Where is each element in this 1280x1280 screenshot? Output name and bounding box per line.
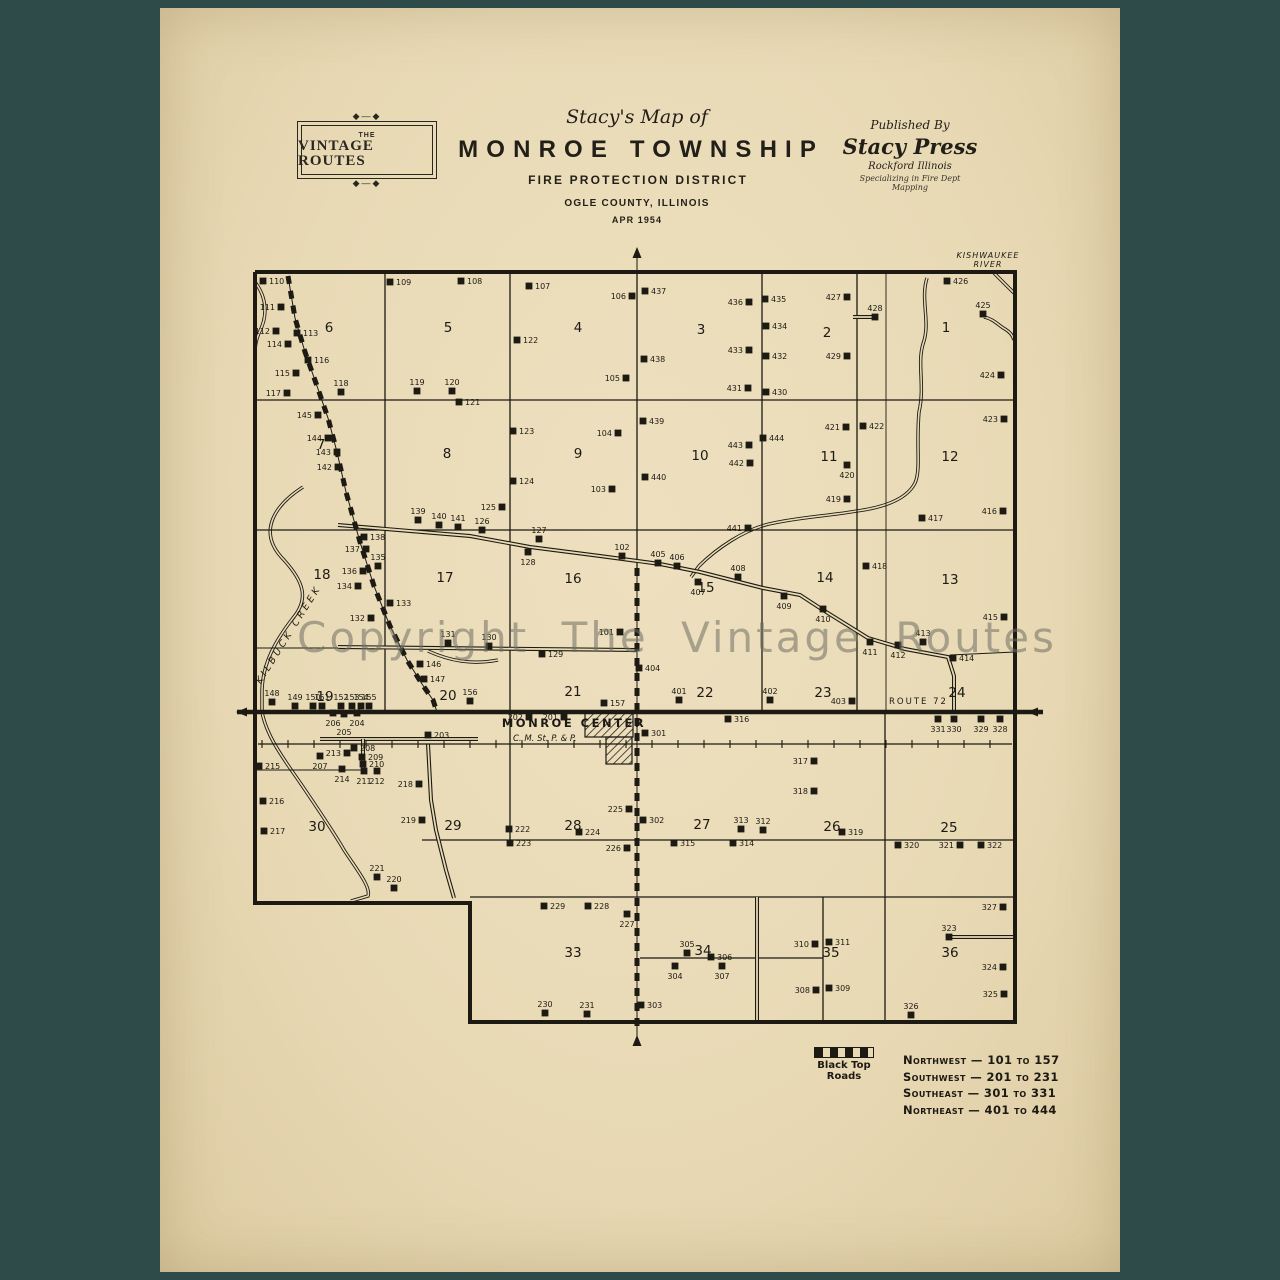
section-number: 19 bbox=[316, 689, 333, 705]
map-marker bbox=[330, 710, 337, 717]
map-marker bbox=[746, 442, 753, 449]
map-marker bbox=[479, 527, 486, 534]
map-marker-number: 222 bbox=[515, 825, 530, 834]
blacktop-road-label-line1: Black Top bbox=[796, 1060, 892, 1071]
map-marker-number: 116 bbox=[314, 356, 329, 365]
map-marker-number: 303 bbox=[647, 1001, 662, 1010]
map-marker bbox=[609, 486, 616, 493]
monroe-center-block bbox=[606, 737, 632, 764]
map-marker-number: 412 bbox=[890, 651, 905, 660]
map-marker bbox=[341, 711, 348, 718]
map-marker bbox=[615, 430, 622, 437]
section-number: 17 bbox=[436, 570, 453, 586]
map-marker bbox=[719, 963, 726, 970]
map-marker bbox=[536, 536, 543, 543]
map-marker bbox=[361, 534, 368, 541]
direction-arrow-icon bbox=[236, 708, 247, 717]
map-marker bbox=[421, 676, 428, 683]
map-marker bbox=[1000, 904, 1007, 911]
map-marker-number: 122 bbox=[523, 336, 538, 345]
map-marker bbox=[944, 278, 951, 285]
direction-arrow-icon bbox=[1027, 708, 1038, 717]
map-marker bbox=[641, 356, 648, 363]
map-marker-number: 134 bbox=[337, 582, 352, 591]
map-marker-number: 331 bbox=[930, 725, 945, 734]
map-marker bbox=[812, 941, 819, 948]
section-number: 28 bbox=[564, 818, 581, 834]
map-marker-number: 229 bbox=[550, 902, 565, 911]
map-marker bbox=[261, 828, 268, 835]
map-marker-number: 312 bbox=[755, 817, 770, 826]
map-marker bbox=[826, 985, 833, 992]
map-marker bbox=[458, 278, 465, 285]
map-marker bbox=[935, 716, 942, 723]
section-number: 27 bbox=[693, 817, 710, 833]
map-marker-number: 428 bbox=[867, 304, 882, 313]
map-marker-number: 439 bbox=[649, 417, 664, 426]
map-marker bbox=[414, 388, 421, 395]
map-marker bbox=[957, 842, 964, 849]
blacktop-road-label-line2: Roads bbox=[796, 1071, 892, 1082]
map-marker-number: 156 bbox=[462, 688, 477, 697]
map-marker-number: 328 bbox=[992, 725, 1007, 734]
map-marker-number: 119 bbox=[409, 378, 424, 387]
map-marker-number: 433 bbox=[728, 346, 743, 355]
section-number: 18 bbox=[313, 567, 330, 583]
map-marker-number: 444 bbox=[769, 434, 784, 443]
map-marker-number: 110 bbox=[269, 277, 284, 286]
section-number: 35 bbox=[822, 945, 839, 961]
map-marker bbox=[920, 639, 927, 646]
map-marker bbox=[895, 642, 902, 649]
map-marker-number: 231 bbox=[579, 1001, 594, 1010]
map-marker-number: 415 bbox=[983, 613, 998, 622]
map-marker-number: 226 bbox=[606, 844, 621, 853]
map-marker bbox=[745, 525, 752, 532]
map-marker bbox=[335, 464, 342, 471]
map-marker bbox=[445, 640, 452, 647]
map-marker-number: 141 bbox=[450, 514, 465, 523]
map-marker-number: 129 bbox=[548, 650, 563, 659]
map-marker-number: 304 bbox=[667, 972, 682, 981]
map-marker-number: 230 bbox=[537, 1000, 552, 1009]
map-marker bbox=[419, 817, 426, 824]
map-marker bbox=[908, 1012, 915, 1019]
map-marker-number: 326 bbox=[903, 1002, 918, 1011]
section-number: 8 bbox=[443, 446, 452, 462]
map-marker bbox=[366, 703, 373, 710]
section-number: 15 bbox=[697, 580, 714, 596]
map-marker bbox=[338, 703, 345, 710]
map-marker bbox=[980, 311, 987, 318]
map-marker-number: 420 bbox=[839, 471, 854, 480]
map-marker-number: 432 bbox=[772, 352, 787, 361]
map-marker-number: 227 bbox=[619, 920, 634, 929]
place-label: KISHWAUKEE bbox=[957, 251, 1020, 260]
map-marker-number: 148 bbox=[264, 689, 279, 698]
map-marker-number: 418 bbox=[872, 562, 887, 571]
map-marker-number: 204 bbox=[349, 719, 364, 728]
creek-line bbox=[262, 487, 303, 712]
map-marker-number: 146 bbox=[426, 660, 441, 669]
map-marker-number: 419 bbox=[826, 495, 841, 504]
map-marker bbox=[425, 732, 432, 739]
map-marker bbox=[294, 330, 301, 337]
map-marker-number: 411 bbox=[862, 648, 877, 657]
section-number: 3 bbox=[697, 322, 706, 338]
map-marker bbox=[293, 370, 300, 377]
map-marker-number: 310 bbox=[794, 940, 809, 949]
map-marker bbox=[655, 560, 662, 567]
section-number: 21 bbox=[564, 684, 581, 700]
map-marker bbox=[539, 651, 546, 658]
map-marker bbox=[978, 842, 985, 849]
map-marker bbox=[601, 700, 608, 707]
map-marker-number: 325 bbox=[983, 990, 998, 999]
map-marker bbox=[338, 389, 345, 396]
map-marker-number: 319 bbox=[848, 828, 863, 837]
map-marker-number: 113 bbox=[303, 329, 318, 338]
section-number: 23 bbox=[814, 685, 831, 701]
map-marker-number: 142 bbox=[317, 463, 332, 472]
map-marker-number: 329 bbox=[973, 725, 988, 734]
map-marker-number: 434 bbox=[772, 322, 787, 331]
section-number: 11 bbox=[820, 449, 837, 465]
map-marker bbox=[1001, 416, 1008, 423]
map-marker-number: 101 bbox=[599, 628, 614, 637]
map-marker bbox=[674, 563, 681, 570]
map-marker bbox=[735, 574, 742, 581]
map-marker-number: 140 bbox=[431, 512, 446, 521]
map-marker-number: 442 bbox=[729, 459, 744, 468]
map-marker-number: 309 bbox=[835, 984, 850, 993]
map-marker-number: 124 bbox=[519, 477, 534, 486]
map-marker bbox=[278, 304, 285, 311]
map-marker bbox=[506, 826, 513, 833]
map-marker-number: 302 bbox=[649, 816, 664, 825]
map-marker bbox=[946, 934, 953, 941]
map-marker-number: 157 bbox=[610, 699, 625, 708]
map-marker-number: 132 bbox=[350, 614, 365, 623]
map-marker-number: 430 bbox=[772, 388, 787, 397]
section-number: 6 bbox=[325, 320, 334, 336]
map-marker bbox=[273, 328, 280, 335]
map-marker-number: 207 bbox=[312, 762, 327, 771]
map-marker-number: 313 bbox=[733, 816, 748, 825]
map-marker bbox=[629, 293, 636, 300]
map-marker bbox=[542, 1010, 549, 1017]
map-marker-number: 424 bbox=[980, 371, 995, 380]
blacktop-road-swatch bbox=[814, 1047, 874, 1058]
section-number: 7 bbox=[317, 437, 326, 453]
map-marker bbox=[1000, 508, 1007, 515]
map-marker bbox=[626, 806, 633, 813]
map-marker bbox=[467, 698, 474, 705]
map-marker bbox=[349, 703, 356, 710]
map-marker bbox=[642, 474, 649, 481]
map-marker bbox=[676, 697, 683, 704]
map-marker-number: 405 bbox=[650, 550, 665, 559]
map-marker-number: 318 bbox=[793, 787, 808, 796]
map-marker-number: 117 bbox=[266, 389, 281, 398]
map-marker-number: 120 bbox=[444, 378, 459, 387]
map-marker-number: 205 bbox=[336, 728, 351, 737]
map-marker-number: 115 bbox=[275, 369, 290, 378]
creek-line bbox=[994, 273, 1014, 293]
section-number: 33 bbox=[564, 945, 581, 961]
map-marker-number: 225 bbox=[608, 805, 623, 814]
map-marker bbox=[746, 347, 753, 354]
section-number: 30 bbox=[308, 819, 325, 835]
map-marker-number: 112 bbox=[255, 327, 270, 336]
map-marker bbox=[260, 278, 267, 285]
map-marker bbox=[416, 781, 423, 788]
section-number: 1 bbox=[942, 320, 951, 336]
map-marker-number: 133 bbox=[396, 599, 411, 608]
section-number: 10 bbox=[691, 448, 708, 464]
map-marker-number: 219 bbox=[401, 816, 416, 825]
map-marker-number: 217 bbox=[270, 827, 285, 836]
map-marker bbox=[525, 549, 532, 556]
section-number: 20 bbox=[439, 688, 456, 704]
map-marker bbox=[305, 357, 312, 364]
map-marker bbox=[360, 761, 367, 768]
map-marker-number: 102 bbox=[614, 543, 629, 552]
map-marker-number: 155 bbox=[361, 693, 376, 702]
map-marker bbox=[684, 950, 691, 957]
section-number: 22 bbox=[696, 685, 713, 701]
section-number: 24 bbox=[948, 685, 965, 701]
map-marker-number: 206 bbox=[325, 719, 340, 728]
map-marker bbox=[417, 661, 424, 668]
place-label: ROUTE 72 bbox=[889, 697, 948, 707]
map-marker-number: 406 bbox=[669, 553, 684, 562]
map-marker-number: 212 bbox=[369, 777, 384, 786]
map-marker bbox=[844, 353, 851, 360]
map-marker bbox=[339, 766, 346, 773]
map-marker bbox=[863, 563, 870, 570]
map-marker bbox=[436, 522, 443, 529]
map-marker bbox=[951, 716, 958, 723]
place-label: KILBUCK CREEK bbox=[254, 583, 324, 686]
map-marker-number: 423 bbox=[983, 415, 998, 424]
map-marker bbox=[811, 788, 818, 795]
map-marker bbox=[760, 435, 767, 442]
map-marker bbox=[456, 399, 463, 406]
map-marker-number: 223 bbox=[516, 839, 531, 848]
map-marker bbox=[998, 372, 1005, 379]
map-marker-number: 408 bbox=[730, 564, 745, 573]
map-marker-number: 136 bbox=[342, 567, 357, 576]
map-marker-number: 123 bbox=[519, 427, 534, 436]
map-marker-number: 301 bbox=[651, 729, 666, 738]
map-marker-number: 317 bbox=[793, 757, 808, 766]
map-marker bbox=[860, 423, 867, 430]
map-marker bbox=[738, 826, 745, 833]
map-marker bbox=[811, 758, 818, 765]
map-marker-number: 429 bbox=[826, 352, 841, 361]
map-marker-number: 314 bbox=[739, 839, 754, 848]
map-marker bbox=[391, 885, 398, 892]
map-marker bbox=[374, 874, 381, 881]
map-marker-number: 426 bbox=[953, 277, 968, 286]
map-marker bbox=[510, 478, 517, 485]
section-number: 16 bbox=[564, 571, 581, 587]
map-marker bbox=[1000, 964, 1007, 971]
map-marker bbox=[344, 750, 351, 757]
map-marker bbox=[763, 353, 770, 360]
map-marker bbox=[358, 703, 365, 710]
map-marker bbox=[269, 699, 276, 706]
map-marker-number: 125 bbox=[481, 503, 496, 512]
map-marker-number: 425 bbox=[975, 301, 990, 310]
map-marker-number: 410 bbox=[815, 615, 830, 624]
section-number: 2 bbox=[823, 325, 832, 341]
map-marker-number: 307 bbox=[714, 972, 729, 981]
map-marker bbox=[640, 817, 647, 824]
map-marker bbox=[747, 460, 754, 467]
map-marker bbox=[844, 294, 851, 301]
map-marker bbox=[455, 524, 462, 531]
map-marker bbox=[486, 643, 493, 650]
map-marker-number: 138 bbox=[370, 533, 385, 542]
map-marker-number: 417 bbox=[928, 514, 943, 523]
map-marker-number: 322 bbox=[987, 841, 1002, 850]
creek-line bbox=[984, 317, 1014, 340]
map-marker-number: 127 bbox=[531, 526, 546, 535]
map-marker-number: 130 bbox=[481, 633, 496, 642]
map-marker-number: 327 bbox=[982, 903, 997, 912]
map-marker bbox=[363, 546, 370, 553]
direction-arrow-icon bbox=[633, 1035, 642, 1046]
map-marker-number: 440 bbox=[651, 473, 666, 482]
map-marker-number: 126 bbox=[474, 517, 489, 526]
map-marker-number: 216 bbox=[269, 797, 284, 806]
map-marker bbox=[260, 798, 267, 805]
range-southeast: Southeast — 301 to 331 bbox=[903, 1085, 1059, 1102]
map-marker-number: 220 bbox=[386, 875, 401, 884]
map-marker-number: 224 bbox=[585, 828, 600, 837]
poster-background: ◆—◆ THE VINTAGE ROUTES ◆—◆ Stacy's Map o… bbox=[0, 0, 1280, 1280]
map-marker-number: 218 bbox=[398, 780, 413, 789]
map-marker-number: 320 bbox=[904, 841, 919, 850]
map-marker-number: 121 bbox=[465, 398, 480, 407]
section-number: 13 bbox=[941, 572, 958, 588]
map-marker-number: 416 bbox=[982, 507, 997, 516]
map-marker-number: 323 bbox=[941, 924, 956, 933]
map-marker bbox=[767, 697, 774, 704]
map-marker bbox=[354, 710, 361, 717]
map-marker-number: 403 bbox=[831, 697, 846, 706]
map-marker-number: 305 bbox=[679, 940, 694, 949]
map-marker bbox=[844, 462, 851, 469]
map-marker-number: 316 bbox=[734, 715, 749, 724]
section-number: 4 bbox=[574, 320, 583, 336]
map-marker-number: 137 bbox=[345, 545, 360, 554]
map-marker bbox=[368, 615, 375, 622]
map-marker-number: 221 bbox=[369, 864, 384, 873]
map-marker bbox=[1001, 991, 1008, 998]
map-marker bbox=[872, 314, 879, 321]
map-marker bbox=[619, 553, 626, 560]
map-marker-number: 147 bbox=[430, 675, 445, 684]
map-marker bbox=[849, 698, 856, 705]
direction-arrow-icon bbox=[633, 247, 642, 258]
map-marker bbox=[762, 296, 769, 303]
map-marker bbox=[449, 388, 456, 395]
map-marker bbox=[623, 375, 630, 382]
section-number: 25 bbox=[940, 820, 957, 836]
map-marker bbox=[374, 768, 381, 775]
map-marker-number: 437 bbox=[651, 287, 666, 296]
map-marker-number: 149 bbox=[287, 693, 302, 702]
map-marker-number: 436 bbox=[728, 298, 743, 307]
map-marker bbox=[507, 840, 514, 847]
map-marker bbox=[624, 845, 631, 852]
map-marker-number: 401 bbox=[671, 687, 686, 696]
map-marker bbox=[285, 341, 292, 348]
range-northeast: Northeast — 401 to 444 bbox=[903, 1102, 1059, 1119]
map-marker-number: 214 bbox=[334, 775, 349, 784]
map-marker bbox=[317, 753, 324, 760]
map-marker bbox=[636, 665, 643, 672]
map-marker-number: 118 bbox=[333, 379, 348, 388]
map-marker bbox=[978, 716, 985, 723]
map-marker bbox=[950, 655, 957, 662]
map-marker-number: 431 bbox=[727, 384, 742, 393]
map-marker bbox=[781, 593, 788, 600]
section-number: 9 bbox=[574, 446, 583, 462]
township-map-svg: 1011021031041051061071081091101111121131… bbox=[0, 0, 1280, 1280]
map-marker bbox=[584, 1011, 591, 1018]
section-number: 26 bbox=[823, 819, 840, 835]
map-marker-number: 438 bbox=[650, 355, 665, 364]
place-label: RIVER bbox=[973, 260, 1002, 269]
map-marker-number: 330 bbox=[946, 725, 961, 734]
blacktop-road-label: Black Top Roads bbox=[796, 1060, 892, 1082]
section-number: 29 bbox=[444, 818, 461, 834]
map-marker bbox=[415, 517, 422, 524]
map-marker-number: 139 bbox=[410, 507, 425, 516]
map-marker-number: 308 bbox=[795, 986, 810, 995]
map-marker-number: 203 bbox=[434, 731, 449, 740]
map-marker-number: 441 bbox=[727, 524, 742, 533]
map-marker bbox=[763, 389, 770, 396]
map-marker bbox=[360, 568, 367, 575]
map-marker bbox=[514, 337, 521, 344]
map-marker-number: 413 bbox=[915, 629, 930, 638]
section-number: 12 bbox=[941, 449, 958, 465]
map-marker bbox=[325, 435, 332, 442]
map-marker bbox=[725, 716, 732, 723]
map-marker-number: 422 bbox=[869, 422, 884, 431]
map-marker bbox=[617, 629, 624, 636]
map-marker-number: 128 bbox=[520, 558, 535, 567]
map-marker bbox=[355, 583, 362, 590]
map-marker bbox=[844, 496, 851, 503]
place-label: MONROE CENTER bbox=[502, 716, 646, 730]
map-marker-number: 131 bbox=[440, 630, 455, 639]
map-marker bbox=[334, 449, 341, 456]
map-marker bbox=[745, 385, 752, 392]
map-marker bbox=[895, 842, 902, 849]
map-marker bbox=[638, 1002, 645, 1009]
map-marker-number: 114 bbox=[267, 340, 282, 349]
map-marker-number: 409 bbox=[776, 602, 791, 611]
section-number: 5 bbox=[444, 320, 453, 336]
map-marker bbox=[315, 412, 322, 419]
map-marker-number: 443 bbox=[728, 441, 743, 450]
